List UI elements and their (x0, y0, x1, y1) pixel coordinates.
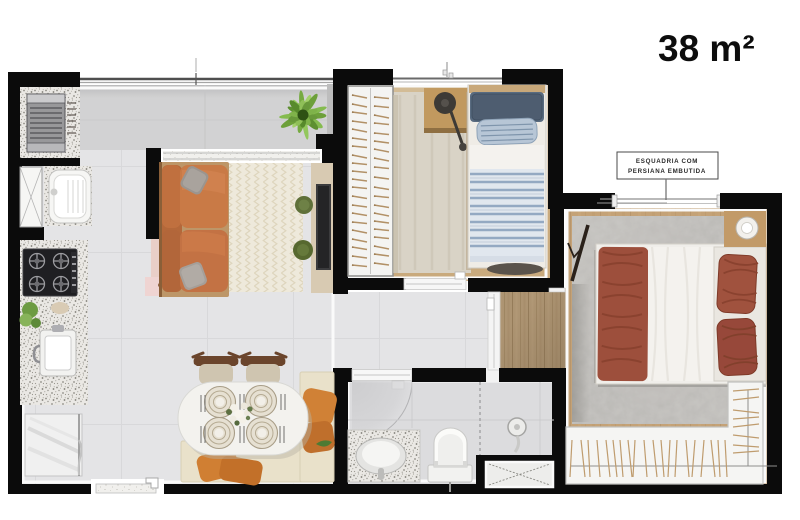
svg-text:ESQUADRIA COM: ESQUADRIA COM (636, 158, 698, 165)
svg-text:PERSIANA EMBUTIDA: PERSIANA EMBUTIDA (628, 168, 706, 175)
svg-text:38 m²: 38 m² (658, 28, 755, 69)
